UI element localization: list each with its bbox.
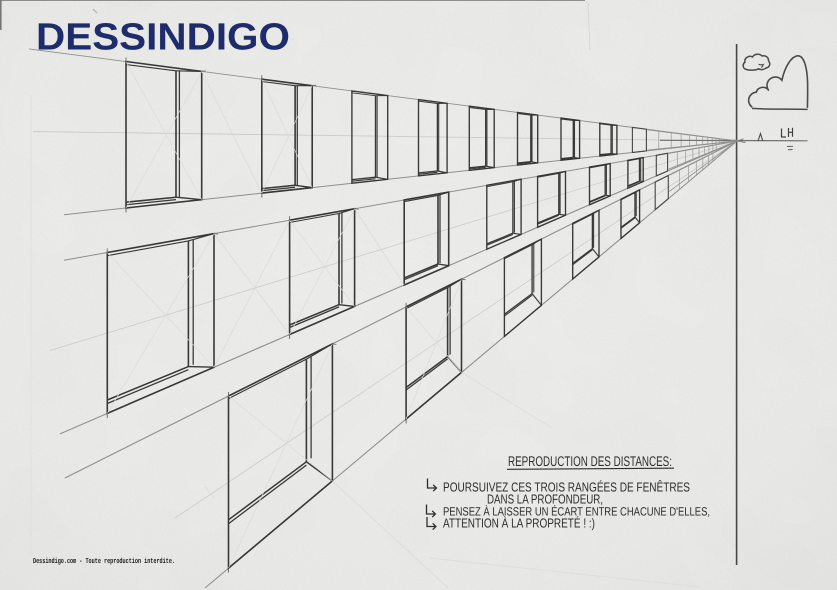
svg-text:Dessindigo.com - Toute reprodu: Dessindigo.com - Toute reproduction inte…	[33, 557, 175, 566]
svg-text:ATTENTION À LA PROPRETÉ ! :): ATTENTION À LA PROPRETÉ ! :)	[443, 516, 595, 531]
svg-text:REPRODUCTION DES DISTANCES:: REPRODUCTION DES DISTANCES:	[508, 453, 672, 469]
svg-text:DESSINDIGO: DESSINDIGO	[36, 17, 290, 59]
